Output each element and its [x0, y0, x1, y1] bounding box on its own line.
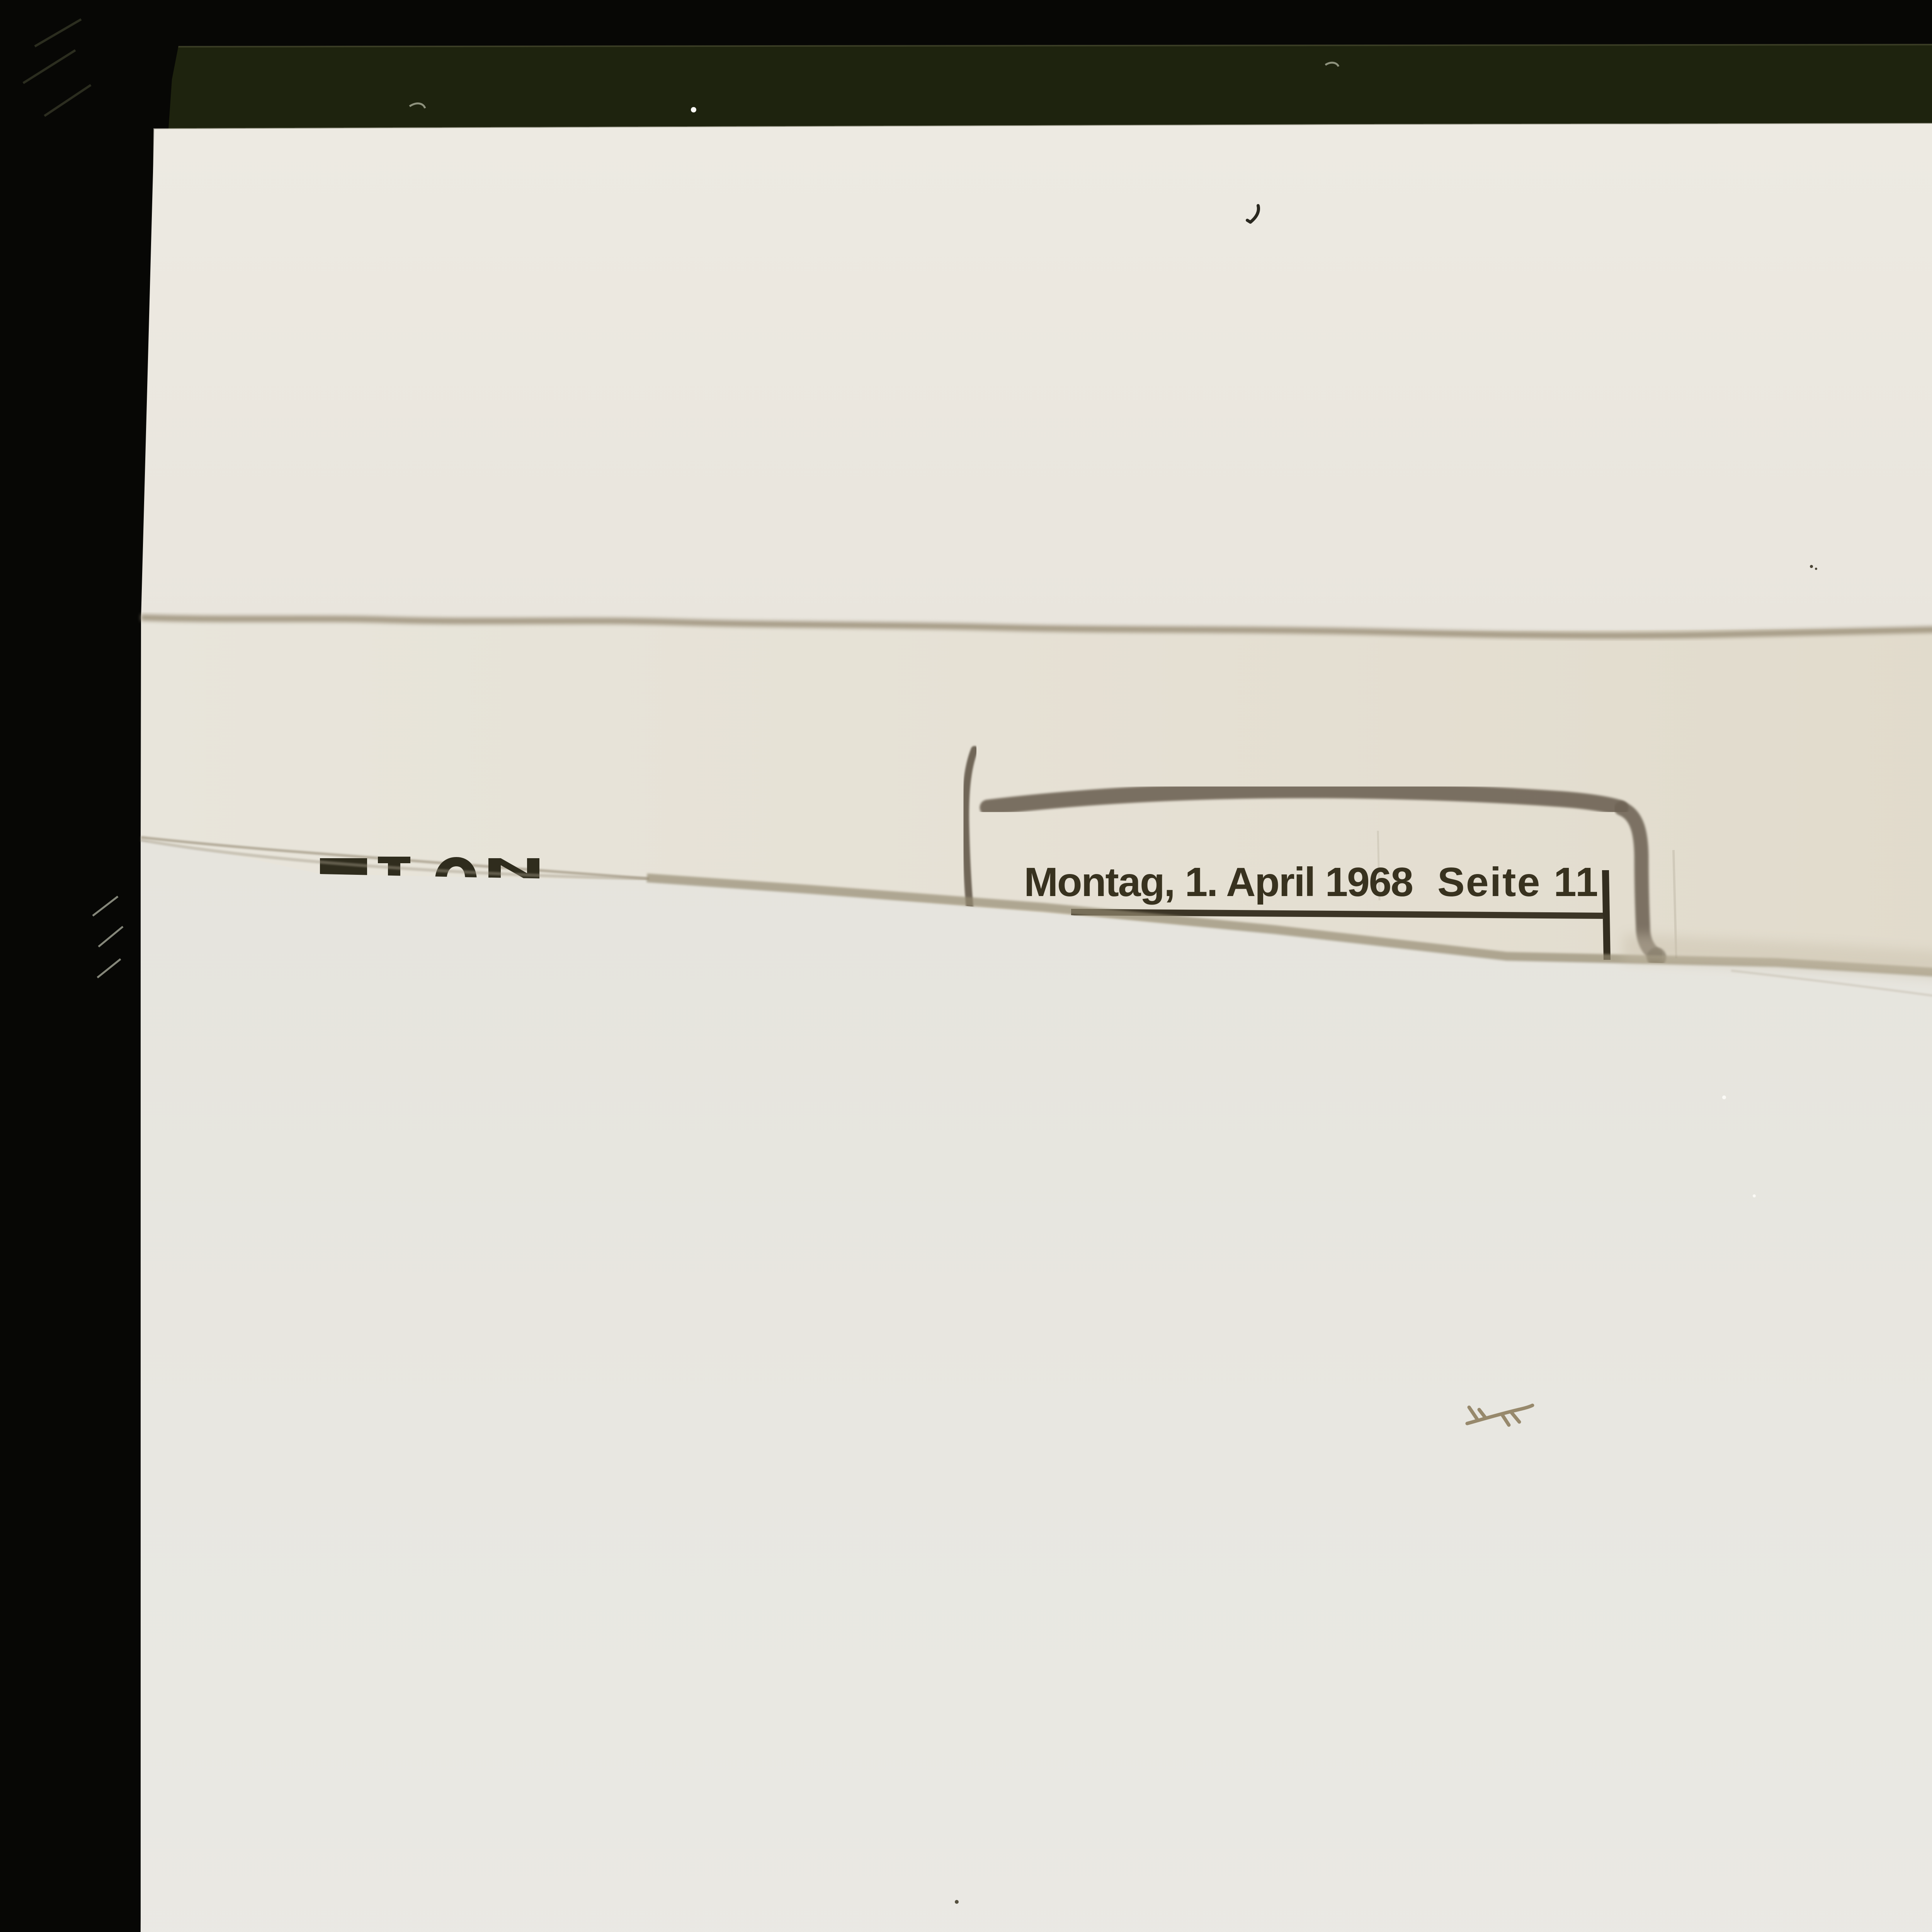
svg-text:Seite 11: Seite 11 [1437, 859, 1598, 905]
svg-text:Montag, 1. April 1968: Montag, 1. April 1968 [1024, 859, 1413, 905]
